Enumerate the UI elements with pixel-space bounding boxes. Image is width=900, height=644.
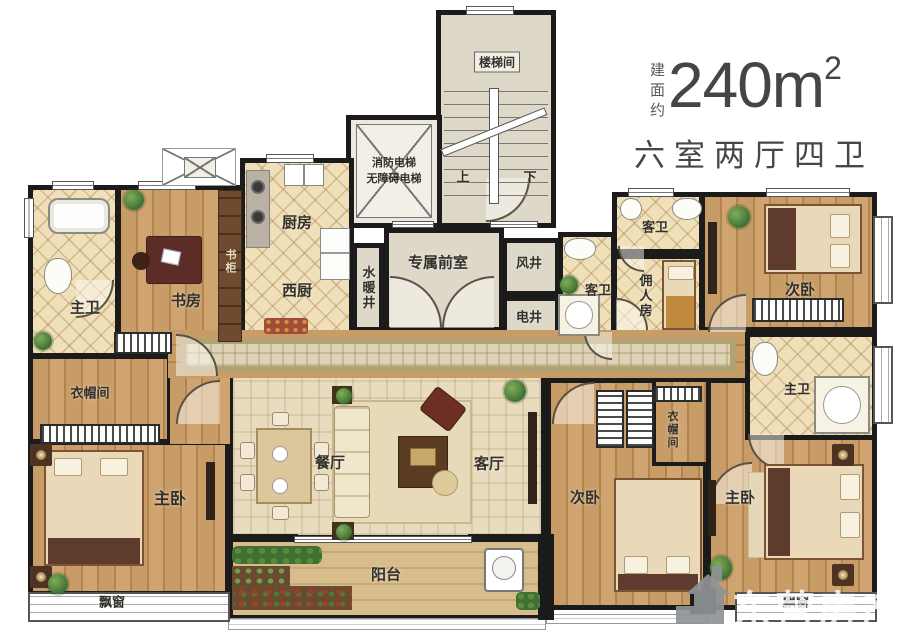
watermark-house-annex <box>676 606 694 624</box>
balcony-wall-right <box>468 534 546 542</box>
closet-hatch <box>114 332 172 354</box>
stair-rail <box>489 88 499 204</box>
bed-blanket <box>666 296 694 328</box>
plant-icon <box>336 388 352 404</box>
nightstand-icon <box>832 444 854 466</box>
pillow-icon <box>830 244 850 268</box>
closet-hatch <box>40 424 160 444</box>
bed-icon <box>764 204 862 274</box>
ottoman-icon <box>432 470 458 496</box>
bedroom-bottom-label: 次卧 <box>570 487 600 508</box>
stair-up-label: 上 <box>456 167 469 186</box>
bay-window-east-1 <box>873 216 893 304</box>
washbasin-icon <box>558 294 600 336</box>
bedroom-top-right-label: 次卧 <box>785 279 815 300</box>
stair-down-label: 下 <box>523 167 536 186</box>
guest-bath-top-label: 客卫 <box>642 217 668 236</box>
watermark-text: 东营房产网 <box>732 578 900 636</box>
closet-hatch <box>654 386 702 402</box>
water-shaft-label: 水暖井 <box>359 266 378 311</box>
coffee-tray-icon <box>410 448 436 466</box>
floor-plan-image: 建面约 240m2 六室两厅四卫 <box>0 0 900 644</box>
plant-icon <box>504 380 526 402</box>
plant-icon <box>560 276 578 294</box>
dining-label: 餐厅 <box>315 452 345 473</box>
dining-chair-icon <box>240 442 255 459</box>
plant-icon <box>48 574 68 594</box>
plant-icon <box>34 332 52 350</box>
servant-bed-icon <box>662 260 696 330</box>
toilet-icon <box>672 198 702 220</box>
tv-cabinet <box>528 412 537 504</box>
window <box>24 198 34 238</box>
pillow-icon <box>624 556 648 574</box>
bathtub-icon <box>48 198 110 234</box>
pillow-icon <box>54 458 82 476</box>
master-bath-right-label: 主卫 <box>784 379 810 398</box>
pillow-icon <box>668 266 694 280</box>
plate-icon <box>272 446 288 462</box>
window <box>766 188 850 197</box>
burner-icon <box>251 180 265 194</box>
closet-hatch <box>596 390 624 448</box>
dining-chair-icon <box>272 412 289 426</box>
area-prefix: 建面约 <box>646 62 667 122</box>
kitchen-label: 厨房 <box>282 212 312 233</box>
cloak-left-label: 衣帽间 <box>70 383 109 402</box>
hedge-icon <box>232 546 322 564</box>
closet-hatch <box>626 390 654 448</box>
elevator-door-gap <box>392 221 434 228</box>
window <box>628 188 674 197</box>
shower-icon <box>814 376 870 434</box>
watermark-house-body <box>694 594 724 624</box>
tv-cabinet <box>206 462 215 520</box>
washbasin-icon <box>620 198 642 220</box>
watermark-house-icon <box>686 574 730 594</box>
toilet-icon <box>752 342 778 376</box>
wind-shaft-label: 风井 <box>516 253 542 272</box>
washing-machine-drum-icon <box>492 556 516 580</box>
balcony-wall-left <box>228 534 298 542</box>
guest-bath-center-label: 客卫 <box>585 280 611 299</box>
kitchen-sink-icon <box>284 164 324 186</box>
nightstand-icon <box>30 444 52 466</box>
kitchen-mat-icon <box>264 318 308 334</box>
elec-shaft-label: 电井 <box>516 307 542 326</box>
plant-icon <box>336 524 352 540</box>
tv-cabinet <box>708 480 716 536</box>
wall-segment <box>538 534 554 620</box>
pillow-icon <box>100 458 128 476</box>
stairwell-label: 楼梯间 <box>474 52 520 73</box>
balcony-glass-door <box>294 536 472 543</box>
area-value: 240m2 <box>668 48 841 122</box>
elevator-label-1: 消防电梯 <box>372 154 416 170</box>
dining-chair-icon <box>314 474 329 491</box>
bed-icon <box>764 464 864 560</box>
pillow-icon <box>830 214 850 238</box>
balcony-label: 阳台 <box>371 564 401 585</box>
window <box>266 154 314 163</box>
desk-chair-icon <box>132 252 150 270</box>
area-superscript: 2 <box>824 50 841 86</box>
hedge-icon <box>516 592 540 610</box>
toilet-icon <box>44 258 72 294</box>
flower-bed-icon <box>234 586 352 610</box>
closet-hatch <box>752 298 844 322</box>
bed-blanket <box>768 208 796 270</box>
fridge-icon <box>320 228 350 280</box>
master-bath-left-label: 主卫 <box>70 297 100 318</box>
bay-window-east-2 <box>873 346 893 424</box>
tv-cabinet <box>708 222 717 294</box>
ac-unit-icon <box>184 157 216 178</box>
burner-icon <box>251 210 265 224</box>
stair-door-gap <box>490 221 538 228</box>
balcony-sill <box>228 618 546 630</box>
bay-left-label: 飘窗 <box>99 592 125 611</box>
toilet-icon <box>564 238 596 260</box>
bed-blanket <box>48 538 140 564</box>
servant-room-label: 佣人房 <box>636 274 655 319</box>
pillow-icon <box>840 474 860 500</box>
study-label: 书房 <box>171 290 201 311</box>
watermark-house-chimney <box>712 566 722 582</box>
bookshelf-label: 书柜 <box>222 249 238 275</box>
cloak-right-label: 衣帽间 <box>664 411 680 450</box>
bed-blanket <box>768 468 790 556</box>
plant-icon <box>728 206 750 228</box>
bed-icon <box>44 450 144 566</box>
plant-icon <box>124 190 144 210</box>
pillow-icon <box>666 556 690 574</box>
layout-subtitle: 六室两厅四卫 <box>634 130 874 175</box>
pillow-icon <box>840 512 860 538</box>
master-bed-left-label: 主卧 <box>154 485 186 509</box>
plate-icon <box>272 478 288 494</box>
master-bed-right-label: 主卧 <box>725 487 755 508</box>
front-room-label: 专属前室 <box>408 252 468 273</box>
elevator-label-2: 无障碍电梯 <box>367 170 422 186</box>
window <box>466 6 514 15</box>
dining-chair-icon <box>240 474 255 491</box>
window <box>52 181 94 190</box>
corridor-mosaic-band <box>180 338 736 372</box>
west-kitchen-label: 西厨 <box>282 280 312 301</box>
living-label: 客厅 <box>474 453 504 474</box>
area-number: 240m <box>668 49 824 121</box>
bay-window-left <box>28 592 230 622</box>
dining-chair-icon <box>272 506 289 520</box>
